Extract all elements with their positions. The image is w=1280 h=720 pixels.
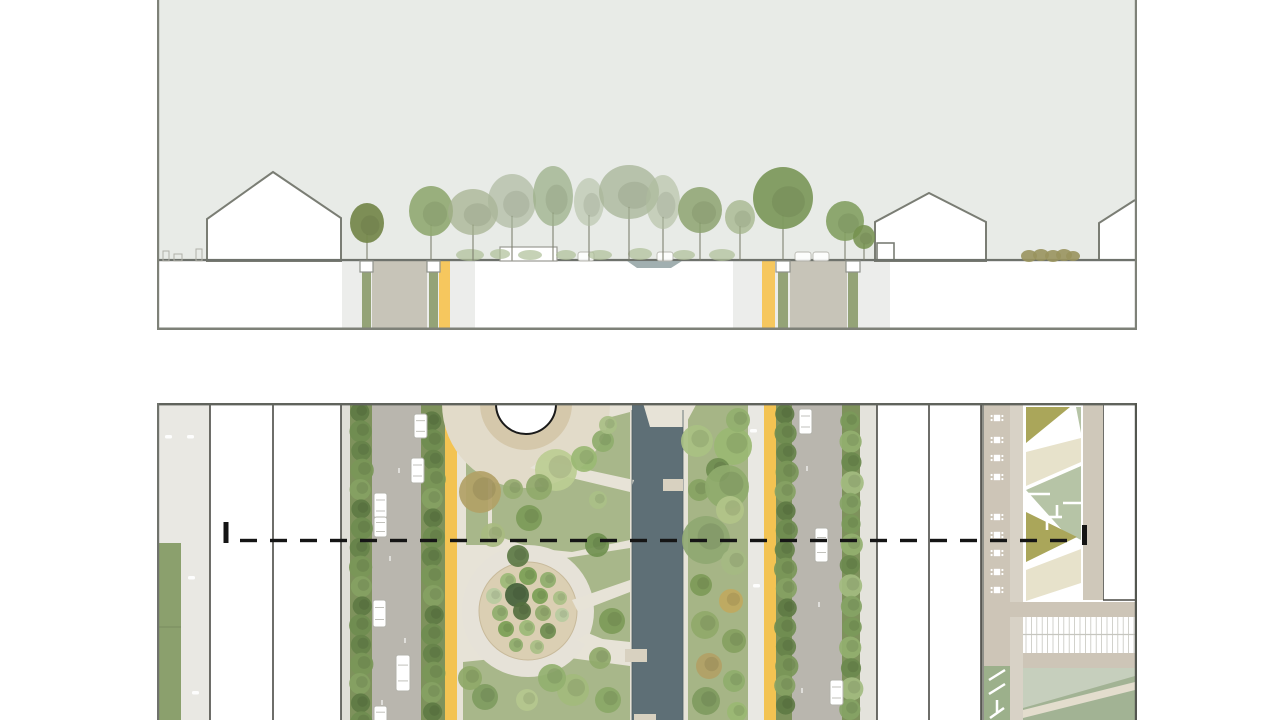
tree-crown-shade [783,523,795,535]
canal-crossing-step [625,649,647,662]
picnic-table-icon [994,587,1000,593]
picnic-chair-dot [991,550,993,552]
picnic-chair-dot [1001,573,1003,575]
tree-canopy-shade [423,202,447,227]
section-cut-dash [420,539,437,542]
picnic-chair-dot [1001,419,1003,421]
section-cut-dash [660,539,677,542]
picnic-table-icon [994,569,1000,575]
pavement-marking [750,429,757,433]
planting-soil-cut [848,272,858,328]
tree-crown-shade [704,657,718,671]
picnic-table-icon [994,437,1000,443]
tree-crown-shade [605,419,615,429]
picnic-chair-dot [1001,437,1003,439]
shrub-understory [709,249,735,261]
lane-speck [389,556,391,561]
tree-crown-shade [430,453,441,464]
section-cut-marker-right [1082,525,1087,545]
car [374,517,387,537]
shrub-understory [673,250,695,260]
plan-border-right [1135,403,1137,720]
section-cut-dash [930,539,947,542]
tree-crown-shade [560,610,568,618]
shrub-understory [556,250,576,260]
tree-crown-shade [846,640,858,652]
ne-building [1103,403,1135,600]
tree-crown-shade [540,607,549,616]
tree-crown-shade [480,688,494,702]
tree-crown-shade [534,478,548,492]
tree-crown-shade [358,656,371,669]
picnic-chair-dot [991,554,993,556]
picnic-chair-dot [991,518,993,520]
road-cut-asphalt-west [372,261,427,328]
canal-crossing-step [663,479,683,491]
tree-crown-shade [525,570,535,580]
tree-crown-shade [849,620,860,631]
planting-soil-cut [778,272,788,328]
tree-crown-shade [357,696,368,707]
picnic-chair-dot [991,587,993,589]
tree-crown-shade [430,471,443,484]
planting-soil-cut [429,272,438,328]
tree-crown-shade [701,691,716,706]
tree-crown-shade [846,414,857,425]
picnic-chair-dot [1001,518,1003,520]
tree-canopy-shade [618,182,651,209]
tree-crown-shade [428,491,440,503]
picnic-chair-dot [1001,554,1003,556]
tree-crown-shade [781,484,793,496]
tree-crown-shade [700,615,715,630]
tree-crown-shade [466,670,479,683]
picnic-chair-dot [991,474,993,476]
parked-car-profile [795,252,811,261]
picnic-chair-dot [991,459,993,461]
section-cut-dash [780,539,797,542]
tree-crown-shade [848,455,859,466]
bike-lane-cut-east [762,261,775,328]
west-lawn-strip [158,543,181,720]
picnic-chair-dot [991,569,993,571]
picnic-chair-dot [991,441,993,443]
tree-crown-shade [697,577,709,589]
tree-crown-shade [357,424,369,436]
picnic-chair-dot [991,415,993,417]
tree-crown-shade [429,647,440,658]
section-cut-dash [690,539,707,542]
tree-crown-shade [503,623,512,632]
tree-crown-shade [356,618,368,630]
garden-hedge [1066,251,1080,261]
section-border-bottom [157,328,1137,331]
bike-lane-cut-west [439,261,450,328]
section-cut-dash [810,539,827,542]
pavement-marking [165,435,172,439]
tree-crown-shade [514,548,526,560]
tree-crown-shade [497,607,506,616]
tree-crown-shade [725,500,740,515]
section-cut-dash [510,539,527,542]
section-cut-dash [570,539,587,542]
lane-speck [801,688,803,693]
east-path-band [1023,653,1135,668]
section-border-left [157,0,159,330]
lane-speck [806,466,808,471]
tree-crown-shade [537,590,546,599]
tree-crown-shade [727,593,740,606]
picnic-chair-dot [991,455,993,457]
pavement-marking [192,691,199,695]
lane-speck [404,638,406,643]
picnic-chair-dot [1001,459,1003,461]
picnic-chair-dot [1001,569,1003,571]
tree-crown-shade [734,705,745,716]
tree-crown-shade [428,550,439,561]
tree-crown-shade [429,433,441,445]
tree-crown-shade [847,434,859,446]
tree-canopy-shade [464,203,492,226]
east-cross-path [987,602,1135,617]
section-cut-dash [960,539,977,542]
picnic-table-icon [994,415,1000,421]
picnic-chair-dot [1001,532,1003,534]
tree-crown-shade [545,625,554,634]
section-cut-dash [630,539,647,542]
tree-crown-shade [510,482,521,493]
street-section-elevation [157,0,1137,330]
picnic-chair-dot [991,478,993,480]
tree-crown-shade [558,593,566,601]
picnic-chair-dot [991,532,993,534]
section-cut-dash [1050,539,1067,542]
section-cut-dash [750,539,767,542]
tree-crown-shade [596,650,608,662]
tree-crown-shade [356,482,368,494]
bike-lane-west [445,403,457,720]
section-cut-dash [480,539,497,542]
tree-crown-shade [356,541,367,552]
tree-canopy-shade [361,215,380,235]
tree-crown-shade [547,668,562,683]
east-plaza-band [1083,403,1103,600]
picnic-chair-dot [1001,441,1003,443]
tree-crown-shade [513,587,526,600]
west-blocks [210,403,341,720]
tree-crown-shade [431,608,442,619]
tree-crown-shade [579,450,593,464]
tree-canopy-shade [583,193,600,217]
tree-crown-shade [429,568,442,581]
tree-crown-shade [726,433,747,454]
section-cut-dash [360,539,377,542]
shrub-understory [456,249,484,261]
tree-crown-shade [848,517,859,528]
tree-crown-shade [729,553,743,567]
car [373,600,386,627]
car [411,458,424,483]
tree-crown-shade [848,599,860,611]
picnic-chair-dot [1001,550,1003,552]
car [374,493,387,518]
section-cut-dash [270,539,287,542]
tree-crown-shade [430,588,442,600]
tree-canopy-shade [860,232,872,244]
shrub-understory [490,249,510,259]
tree-crown-shade [549,455,572,478]
promenade-light [1010,403,1023,720]
curb-east [860,403,877,720]
tree-crown-shade [595,494,605,504]
section-cut-dash [840,539,857,542]
pavement-marking [188,576,195,580]
section-cut-dash [540,539,557,542]
section-cut-dash [450,539,467,542]
car [414,414,427,438]
tree-crown-shade [514,640,522,648]
tree-crown-shade [847,578,860,591]
section-cut-dash [720,539,737,542]
canal-crossing-step [634,714,656,720]
picnic-chair-dot [1001,587,1003,589]
car [830,680,843,705]
section-cut-dash [300,539,317,542]
tree-pit [846,261,860,272]
picnic-table-icon [994,514,1000,520]
tree-crown-shade [593,537,606,550]
picnic-chair-dot [1001,536,1003,538]
tree-crown-shade [782,640,793,651]
tree-crown-shade [358,462,371,475]
tree-crown-shade [523,692,535,704]
shrub-understory [628,248,652,260]
tree-crown-shade [783,464,796,477]
tree-crown-shade [545,574,554,583]
tree-canopy-shade [772,186,805,217]
car [374,706,387,720]
lane-speck [381,700,383,705]
tree-crown-shade [524,509,538,523]
section-cut-dash [900,539,917,542]
drawing-canvas [0,0,1280,720]
tree-crown-shade [607,612,621,626]
tree-crown-shade [358,521,370,533]
tree-crown-shade [781,620,793,632]
picnic-chair-dot [991,591,993,593]
tree-crown-shade [734,412,747,425]
tree-canopy-shade [734,211,751,228]
shrub-understory [588,250,612,260]
tree-canopy-shade [692,201,716,224]
tree-crown-shade [846,496,858,508]
section-cut-dash [240,539,257,542]
tree-crown-shade [429,705,440,716]
shrub-understory [518,250,542,260]
pavement-marking [187,435,194,439]
tree-crown-shade [428,414,439,425]
tree-crown-shade [358,502,369,513]
section-cut-dash [870,539,887,542]
picnic-chair-dot [1001,478,1003,480]
curb-west [341,403,350,720]
planting-soil-cut [362,272,371,328]
tree-crown-shade [519,605,529,615]
tree-crown-shade [356,676,368,688]
tree-crown-shade [782,561,795,574]
car [799,409,812,434]
picnic-table-icon [994,532,1000,538]
pavement-marking [753,584,760,588]
ground-line [157,259,1135,261]
tree-crown-shade [358,444,369,455]
tree-crown-shade [719,472,743,496]
tree-crown-shade [783,504,794,515]
tree-crown-shade [603,691,617,705]
tree-crown-shade [848,681,861,694]
tree-crown-shade [783,581,795,593]
tree-crown-shade [524,622,533,631]
section-border-right [1135,0,1137,330]
tree-pit [360,261,373,272]
tree-crown-shade [357,559,370,572]
road-cut-asphalt-east [790,261,847,328]
tree-crown-shade [846,702,858,714]
picnic-chair-dot [1001,474,1003,476]
tree-crown-shade [428,627,440,639]
tree-crown-shade [781,678,793,690]
tree-canopy-shade [546,185,568,215]
section-cut-dash [600,539,617,542]
tree-crown-shade [535,642,543,650]
tree-crown-shade [357,638,368,649]
plan-border-top [157,403,1137,405]
tree-crown-shade [691,430,709,448]
picnic-table-icon [994,550,1000,556]
parked-car-profile [813,252,829,261]
bike-lane-east [764,403,776,720]
section-cut-marker-left [224,522,229,543]
tree-crown-shade [730,633,743,646]
tree-crown-shade [599,433,611,445]
tree-crown-shade [781,407,792,418]
tree-crown-shade [358,579,370,591]
section-cut-dash [390,539,407,542]
picnic-chair-dot [1001,415,1003,417]
lane-speck [398,468,400,473]
picnic-chair-dot [991,419,993,421]
tree-crown-shade [847,661,858,672]
picnic-chair-dot [1001,514,1003,516]
tree-crown-shade [781,543,792,554]
picnic-chair-dot [1001,591,1003,593]
tree-crown-shade [782,426,794,438]
tree-crown-shade [730,673,742,685]
car [396,655,410,691]
street-site-plan [157,403,1137,720]
tree-crown-shade [698,523,724,549]
picnic-table-icon [994,455,1000,461]
tree-crown-shade [848,537,860,549]
picnic-chair-dot [1001,455,1003,457]
section-cut-dash [1020,539,1037,542]
section-cut-dash [990,539,1007,542]
picnic-chair-dot [991,437,993,439]
car [815,528,828,562]
tree-crown-shade [359,599,370,610]
tree-crown-shade [430,511,441,522]
parked-car-profile [657,252,673,261]
tree-crown-shade [428,685,440,697]
tree-canopy-shade [657,192,676,219]
tree-crown-shade [848,475,861,488]
tree-pit [776,261,790,272]
section-cut-dash [330,539,347,542]
tree-crown-shade [430,665,443,678]
plan-border-left [157,403,159,720]
tree-crown-shade [505,575,514,584]
tree-pit [427,261,440,272]
picnic-table-icon [994,474,1000,480]
tree-crown-shade [473,477,496,500]
tree-crown-shade [782,698,793,709]
picnic-chair-dot [991,536,993,538]
picnic-chair-dot [991,514,993,516]
tree-crown-shade [783,658,796,671]
canal [632,403,683,720]
picnic-chair-dot [991,573,993,575]
tree-crown-shade [567,679,585,697]
tree-crown-shade [489,527,502,540]
lane-speck [818,602,820,607]
below-ground [157,261,1137,330]
tree-crown-shade [784,601,795,612]
tree-crown-shade [491,590,500,599]
tree-crown-shade [846,558,857,569]
house-east-annex [877,243,894,261]
tree-crown-shade [783,446,794,457]
tree-canopy-shade [503,191,529,218]
tree-crown-shade [356,405,367,416]
